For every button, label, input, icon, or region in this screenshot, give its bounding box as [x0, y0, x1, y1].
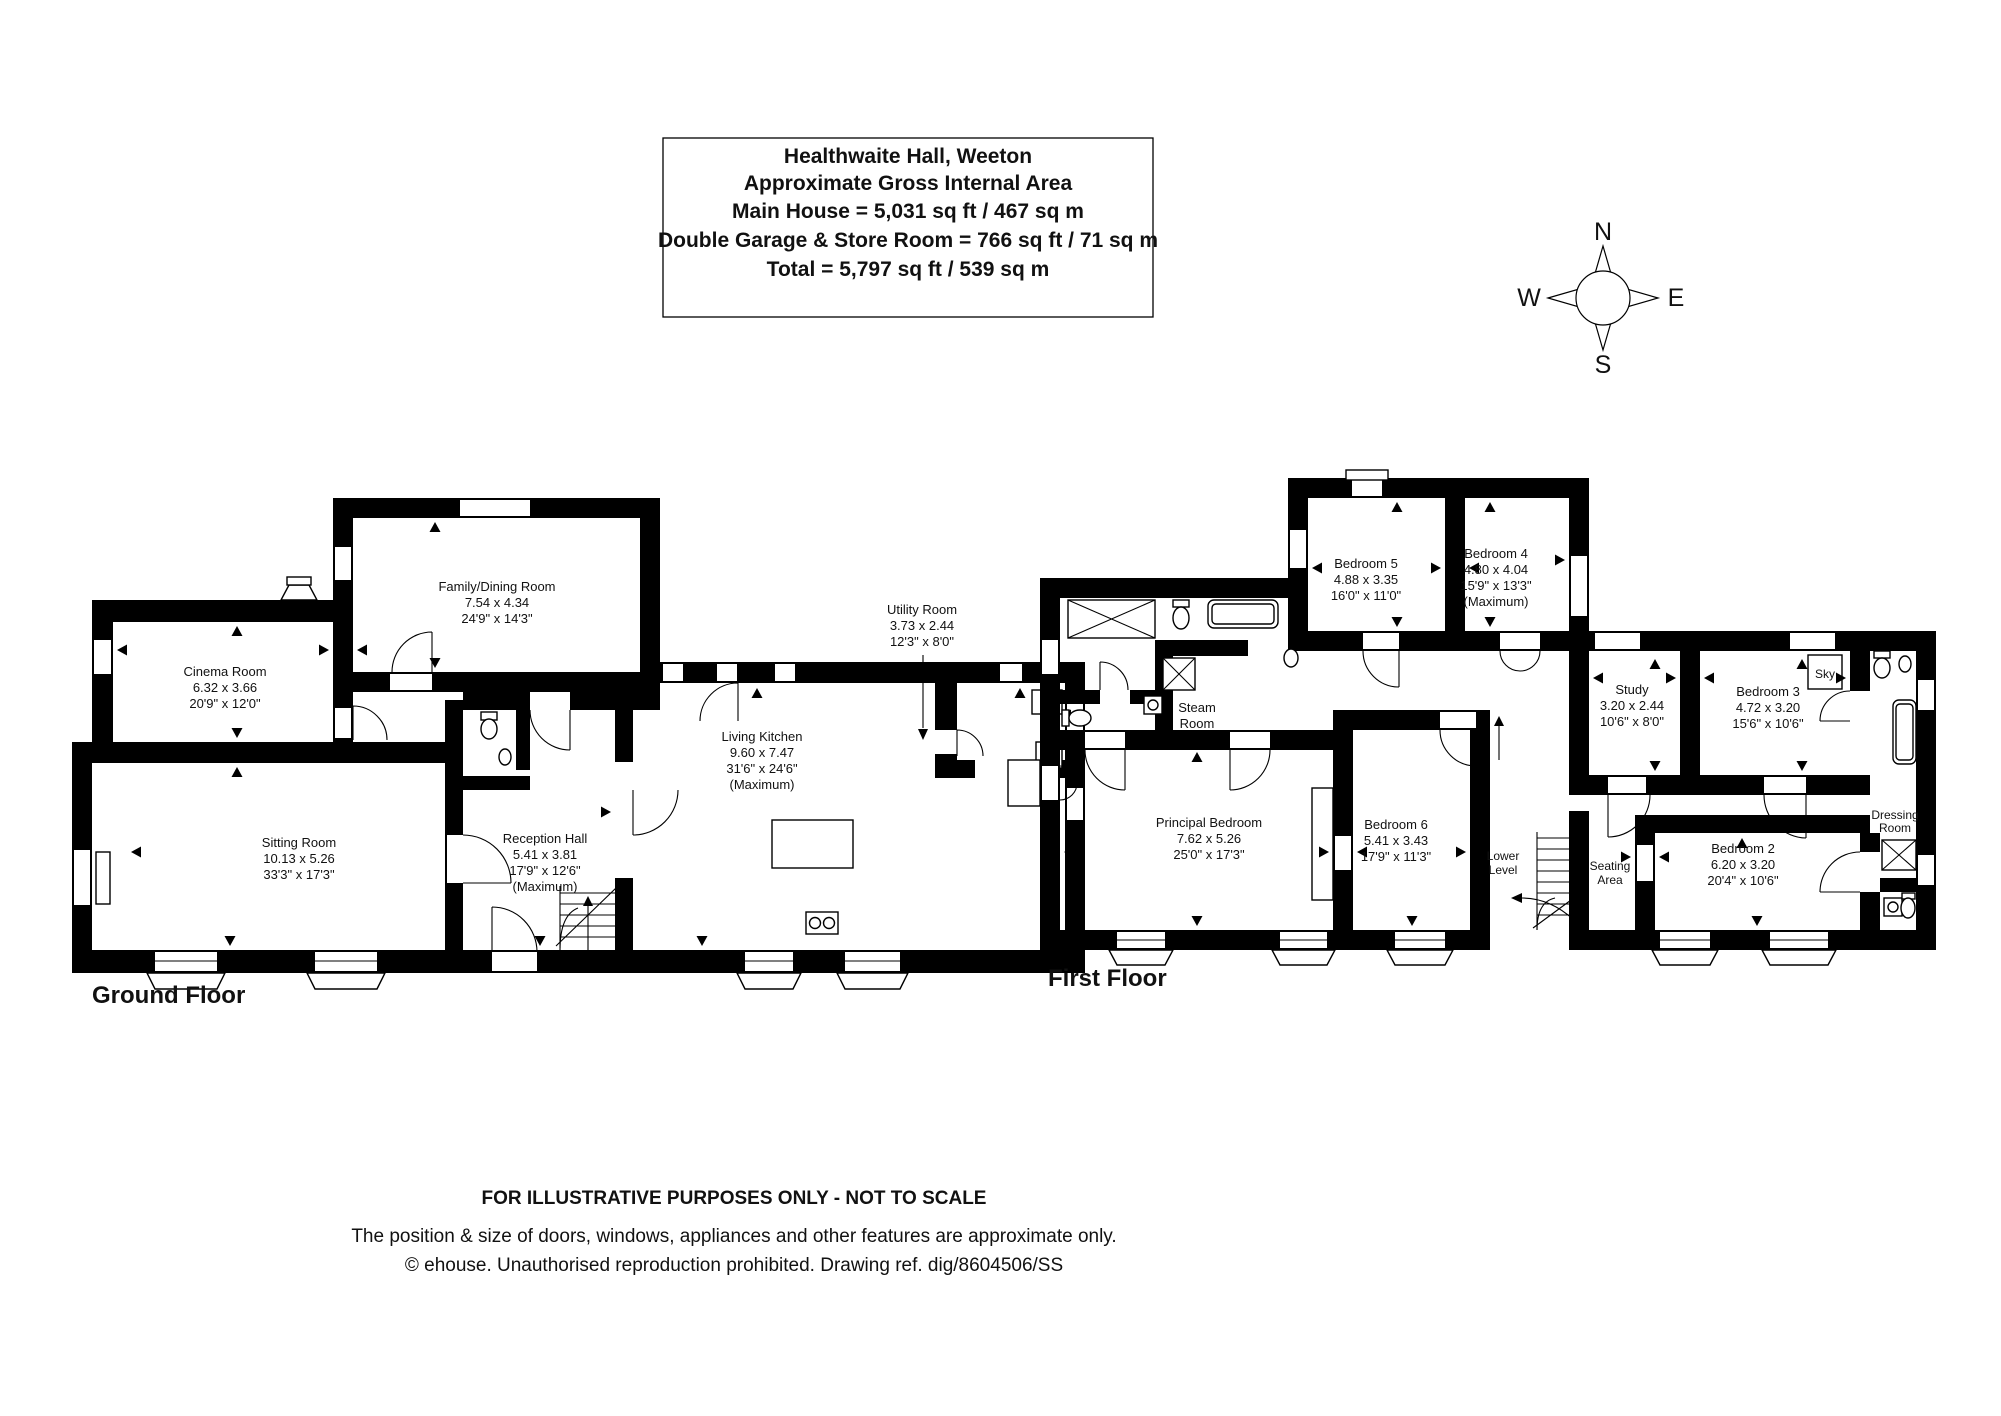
toilet-icon — [1173, 607, 1189, 629]
compass-south-label: S — [1595, 351, 1612, 379]
compass-west-label: W — [1517, 284, 1541, 312]
room-dims-study-imperial: 10'6" x 8'0" — [1600, 714, 1664, 729]
floorplan-page: Healthwaite Hall, Weeton Approximate Gro… — [0, 0, 2001, 1416]
room-dims-kitchen-metric: 9.60 x 7.47 — [730, 745, 794, 760]
footer-disclaimer-line2: The position & size of doors, windows, a… — [351, 1226, 1116, 1247]
room-label-lower-1: Lower — [1487, 849, 1520, 863]
compass-east-label: E — [1668, 284, 1685, 312]
room-note-bed4: (Maximum) — [1464, 594, 1529, 609]
room-label-bed2: Bedroom 2 — [1711, 841, 1775, 856]
staircase-ground — [556, 886, 616, 954]
room-label-family-dining: Family/Dining Room — [438, 579, 555, 594]
room-note-kitchen: (Maximum) — [730, 777, 795, 792]
first-floor-label: First Floor — [1048, 965, 1167, 992]
wc-cistern — [1874, 651, 1890, 658]
room-dims-bed4-metric: 4.80 x 4.04 — [1464, 562, 1528, 577]
basin-icon — [1284, 649, 1298, 667]
title-line-1: Healthwaite Hall, Weeton — [784, 145, 1032, 168]
room-dims-bed3-metric: 4.72 x 3.20 — [1736, 700, 1800, 715]
ground-floor-label: Ground Floor — [92, 982, 245, 1009]
room-dims-principal-imperial: 25'0" x 17'3" — [1173, 847, 1245, 862]
wc-cistern — [1173, 600, 1189, 607]
room-label-steam-2: Room — [1180, 716, 1215, 731]
title-line-3: Main House = 5,031 sq ft / 467 sq m — [732, 200, 1084, 223]
room-label-bed5: Bedroom 5 — [1334, 556, 1398, 571]
skylight-label: Sky — [1815, 667, 1835, 681]
room-dims-bed2-metric: 6.20 x 3.20 — [1711, 857, 1775, 872]
room-dims-family-imperial: 24'9" x 14'3" — [461, 611, 533, 626]
wc-cistern — [1062, 710, 1069, 726]
room-label-principal: Principal Bedroom — [1156, 815, 1262, 830]
toilet-icon — [1901, 898, 1915, 918]
room-dims-study-metric: 3.20 x 2.44 — [1600, 698, 1664, 713]
room-dims-sitting-imperial: 33'3" x 17'3" — [263, 867, 335, 882]
room-label-seating-2: Area — [1597, 873, 1623, 887]
room-label-dressing-2: Room — [1879, 821, 1911, 835]
room-dims-principal-metric: 7.62 x 5.26 — [1177, 831, 1241, 846]
room-label-bed3: Bedroom 3 — [1736, 684, 1800, 699]
wardrobe — [1312, 788, 1333, 900]
porch-outline — [1008, 760, 1040, 806]
room-label-steam-1: Steam — [1178, 700, 1216, 715]
title-line-2: Approximate Gross Internal Area — [744, 172, 1073, 195]
room-dims-bed6-metric: 5.41 x 3.43 — [1364, 833, 1428, 848]
room-dims-kitchen-imperial: 31'6" x 24'6" — [726, 761, 798, 776]
footer-copyright-line: © ehouse. Unauthorised reproduction proh… — [405, 1255, 1063, 1276]
room-dims-reception-imperial: 17'9" x 12'6" — [509, 863, 581, 878]
room-dims-cinema-imperial: 20'9" x 12'0" — [189, 696, 261, 711]
ground-floor-walls — [72, 498, 1085, 973]
room-dims-reception-metric: 5.41 x 3.81 — [513, 847, 577, 862]
landing-arrow — [1494, 716, 1504, 760]
basin-icon — [1899, 656, 1911, 672]
room-label-reception: Reception Hall — [503, 831, 588, 846]
room-label-study: Study — [1615, 682, 1649, 697]
title-line-5: Total = 5,797 sq ft / 539 sq m — [767, 258, 1050, 281]
room-label-cinema: Cinema Room — [183, 664, 266, 679]
ground-floor-markers — [117, 522, 1071, 946]
room-dims-utility-imperial: 12'3" x 8'0" — [890, 634, 954, 649]
room-label-seating-1: Seating — [1590, 859, 1631, 873]
room-label-kitchen: Living Kitchen — [722, 729, 803, 744]
room-label-bed4: Bedroom 4 — [1464, 546, 1528, 561]
compass-rose-icon — [1548, 246, 1658, 350]
room-dims-bed5-imperial: 16'0" x 11'0" — [1331, 588, 1402, 603]
room-label-sitting: Sitting Room — [262, 835, 336, 850]
room-label-utility: Utility Room — [887, 602, 957, 617]
room-dims-bed3-imperial: 15'6" x 10'6" — [1732, 716, 1804, 731]
footer-disclaimer-line1: FOR ILLUSTRATIVE PURPOSES ONLY - NOT TO … — [482, 1188, 987, 1209]
compass-north-label: N — [1594, 218, 1612, 246]
room-dims-sitting-metric: 10.13 x 5.26 — [263, 851, 335, 866]
room-dims-family-metric: 7.54 x 4.34 — [465, 595, 529, 610]
toilet-icon — [481, 719, 497, 739]
room-dims-bed2-imperial: 20'4" x 10'6" — [1707, 873, 1779, 888]
room-dims-cinema-metric: 6.32 x 3.66 — [193, 680, 257, 695]
room-dims-bed5-metric: 4.88 x 3.35 — [1334, 572, 1398, 587]
room-note-reception: (Maximum) — [513, 879, 578, 894]
room-label-lower-2: Level — [1489, 863, 1518, 877]
basin-icon — [499, 749, 511, 765]
kitchen-island — [772, 820, 853, 868]
room-dims-bed4-imperial: 15'9" x 13'3" — [1460, 578, 1532, 593]
room-dims-utility-metric: 3.73 x 2.44 — [890, 618, 954, 633]
window-seat — [96, 852, 110, 904]
toilet-icon — [1069, 710, 1091, 726]
room-dims-bed6-imperial: 17'9" x 11'3" — [1361, 849, 1432, 864]
toilet-icon — [1874, 658, 1890, 678]
title-line-4: Double Garage & Store Room = 766 sq ft /… — [658, 229, 1158, 252]
room-label-bed6: Bedroom 6 — [1364, 817, 1428, 832]
floorplan-canvas: Healthwaite Hall, Weeton Approximate Gro… — [0, 0, 2001, 1416]
room-label-dressing-1: Dressing — [1871, 808, 1918, 822]
